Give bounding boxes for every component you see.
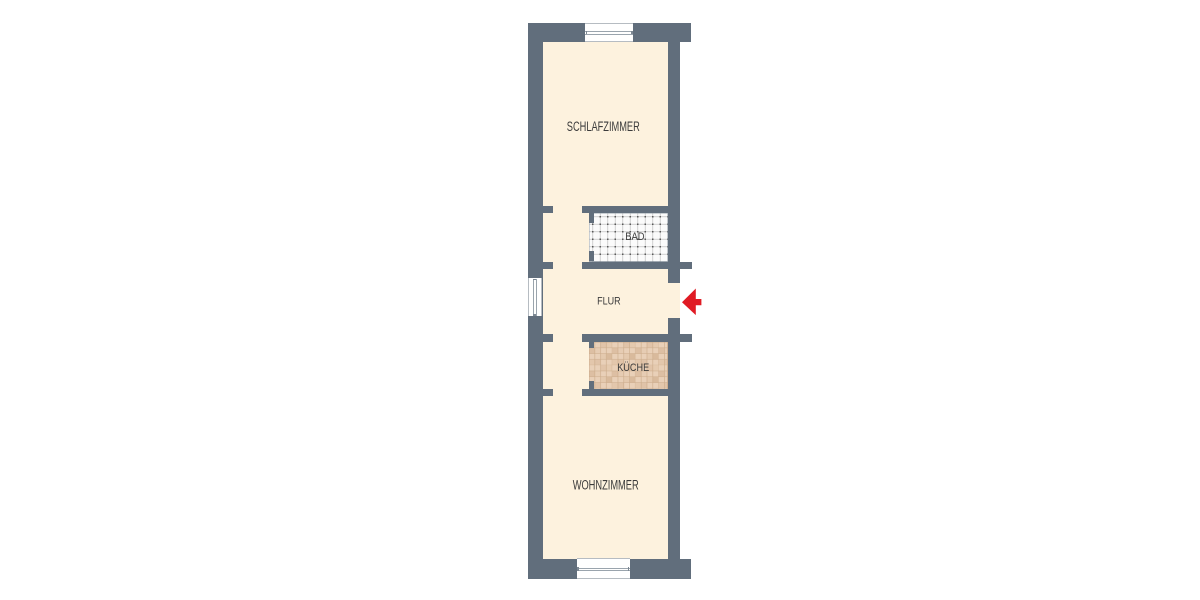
svg-text:BAD: BAD [625,231,645,243]
svg-text:SCHLAFZIMMER: SCHLAFZIMMER [567,119,640,134]
svg-text:WOHNZIMMER: WOHNZIMMER [573,478,639,493]
svg-text:FLUR: FLUR [597,296,621,308]
svg-text:KÜCHE: KÜCHE [617,362,649,374]
